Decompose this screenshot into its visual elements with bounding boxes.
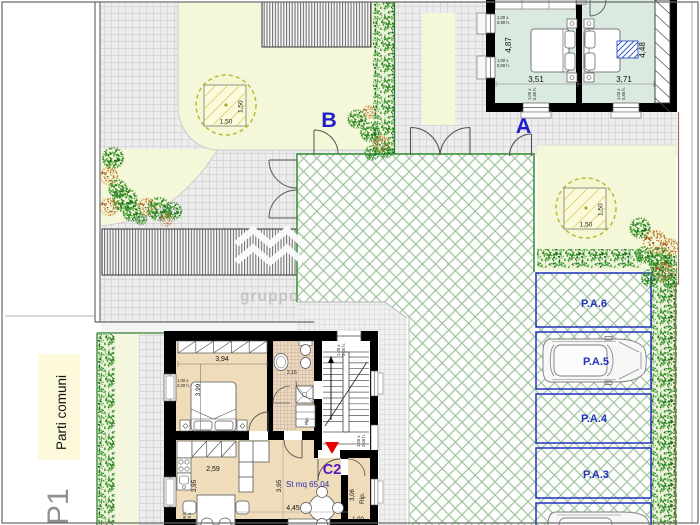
svg-text:3,06: 3,06 [350, 489, 356, 501]
svg-text:0,80 h.: 0,80 h. [497, 63, 510, 68]
svg-text:1,00: 1,00 [352, 517, 364, 523]
svg-text:St mq 65,04: St mq 65,04 [286, 480, 330, 489]
svg-text:0,80 h.: 0,80 h. [621, 87, 626, 100]
svg-text:P.A.6: P.A.6 [581, 298, 607, 310]
svg-text:Parti comuni: Parti comuni [54, 375, 69, 450]
svg-text:2,00 h.: 2,00 h. [341, 343, 346, 356]
svg-text:2,16: 2,16 [287, 370, 297, 376]
svg-text:4,48: 4,48 [638, 42, 647, 58]
svg-text:3,95: 3,95 [191, 479, 198, 492]
svg-text:3,99: 3,99 [195, 383, 202, 396]
svg-text:0,80 h.: 0,80 h. [532, 87, 537, 100]
svg-text:P.A.3: P.A.3 [583, 469, 609, 481]
svg-text:3,51: 3,51 [528, 75, 544, 84]
svg-text:2,59: 2,59 [206, 466, 220, 473]
svg-text:P.A.5: P.A.5 [583, 356, 609, 368]
svg-text:Rip.: Rip. [359, 492, 366, 504]
svg-text:1,70 x: 1,70 x [187, 512, 192, 524]
svg-text:3,95: 3,95 [276, 479, 283, 492]
svg-text:Rip.: Rip. [304, 417, 309, 425]
svg-text:3,94: 3,94 [215, 356, 229, 363]
svg-text:0,80 h.: 0,80 h. [497, 20, 510, 25]
svg-text:A: A [516, 114, 532, 138]
svg-text:B: B [321, 108, 337, 132]
svg-text:3,71: 3,71 [616, 75, 632, 84]
svg-text:4,45: 4,45 [286, 505, 300, 512]
svg-text:gruppo: gruppo [240, 288, 299, 305]
svg-text:P.A.4: P.A.4 [581, 413, 608, 425]
svg-text:C2: C2 [323, 462, 342, 478]
svg-text:P1: P1 [42, 488, 75, 525]
svg-text:2,00 h.: 2,00 h. [361, 434, 366, 447]
svg-text:4,87: 4,87 [504, 37, 513, 53]
svg-text:2,00 h.: 2,00 h. [177, 383, 190, 388]
